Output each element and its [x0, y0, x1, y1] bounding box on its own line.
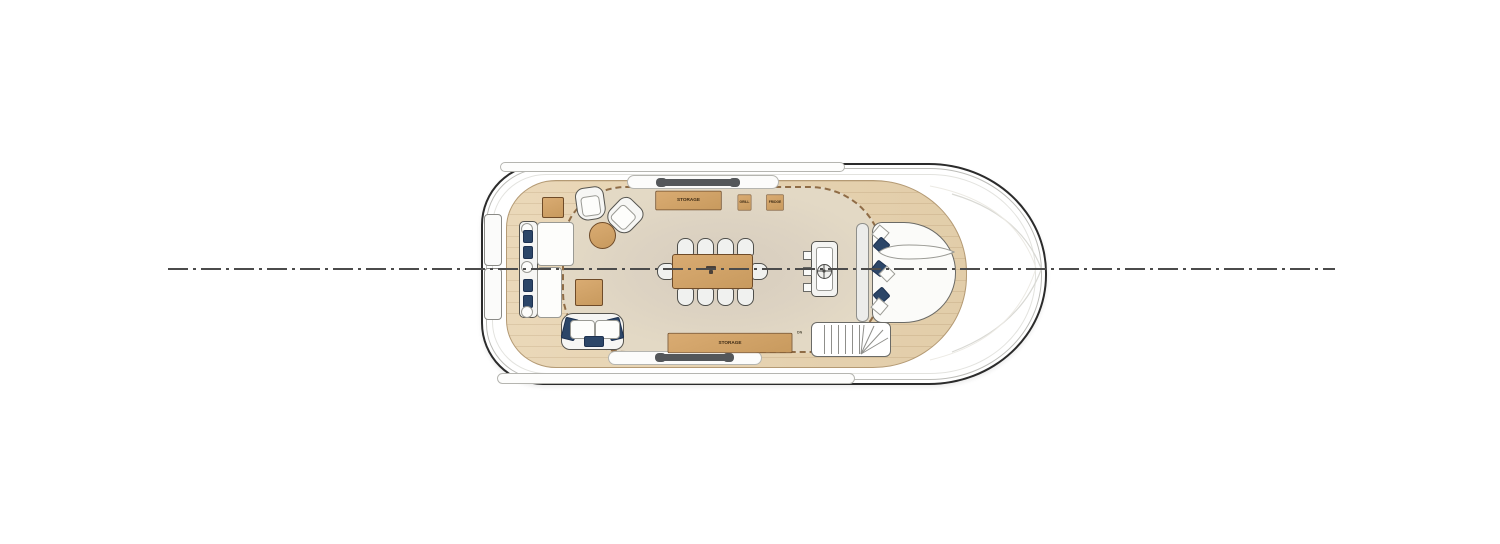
sofa-pillow-navy [523, 246, 533, 259]
sofa-pillow-white [521, 306, 533, 318]
helm-wheel [817, 264, 832, 279]
handrail-top-cap-left [656, 178, 667, 187]
storage-cabinet-bottom-label: STORAGE [718, 341, 741, 346]
stairs-down-label: DN [797, 331, 809, 335]
grill-cabinet-label: GRILL [740, 201, 750, 204]
dining-chair [737, 288, 754, 306]
grill-cabinet: GRILL [738, 195, 752, 211]
aft-sofa-chaise [537, 222, 574, 266]
staircase [811, 322, 891, 357]
dining-chair-end [657, 263, 673, 280]
helm-pod [803, 251, 812, 260]
side-table [542, 197, 564, 218]
loveseat-pillow-navy [584, 336, 604, 347]
loveseat [561, 313, 624, 350]
dining-chair-end [752, 263, 768, 280]
dining-chair [677, 288, 694, 306]
sheer-strip-bottom [497, 373, 855, 384]
yacht-deck-plan: STORAGE GRILL FRIDGE STORAGE DN [0, 0, 1500, 544]
handrail-bottom-cap-left [655, 353, 666, 362]
sofa-pillow-white [521, 261, 533, 273]
transom-step-upper [484, 214, 502, 266]
armchair-cushion [609, 203, 637, 231]
armchair [574, 185, 607, 222]
stair-treads [818, 325, 866, 354]
storage-cabinet-bottom: STORAGE [668, 333, 793, 353]
aft-sofa-seat [537, 267, 562, 318]
sheer-strip-top [500, 162, 845, 172]
armchair-cushion [580, 195, 602, 217]
windshield [856, 223, 869, 322]
centerline [168, 268, 1335, 270]
handrail-top-cap-right [729, 178, 740, 187]
fridge-cabinet-label: FRIDGE [769, 201, 781, 204]
transom-step-lower [484, 268, 502, 320]
handrail-top [660, 179, 740, 186]
dining-chair [697, 288, 714, 306]
dining-chair [717, 288, 734, 306]
table-center-mark [709, 270, 713, 274]
sofa-pillow-navy [523, 230, 533, 243]
storage-cabinet-top: STORAGE [655, 191, 721, 211]
handrail-bottom [659, 354, 729, 361]
sofa-pillow-navy [523, 279, 533, 292]
fridge-cabinet: FRIDGE [766, 195, 784, 211]
coffee-table-square [575, 279, 603, 306]
helm-pod [803, 283, 812, 292]
handrail-bottom-cap-right [723, 353, 734, 362]
storage-cabinet-top-label: STORAGE [677, 198, 700, 203]
